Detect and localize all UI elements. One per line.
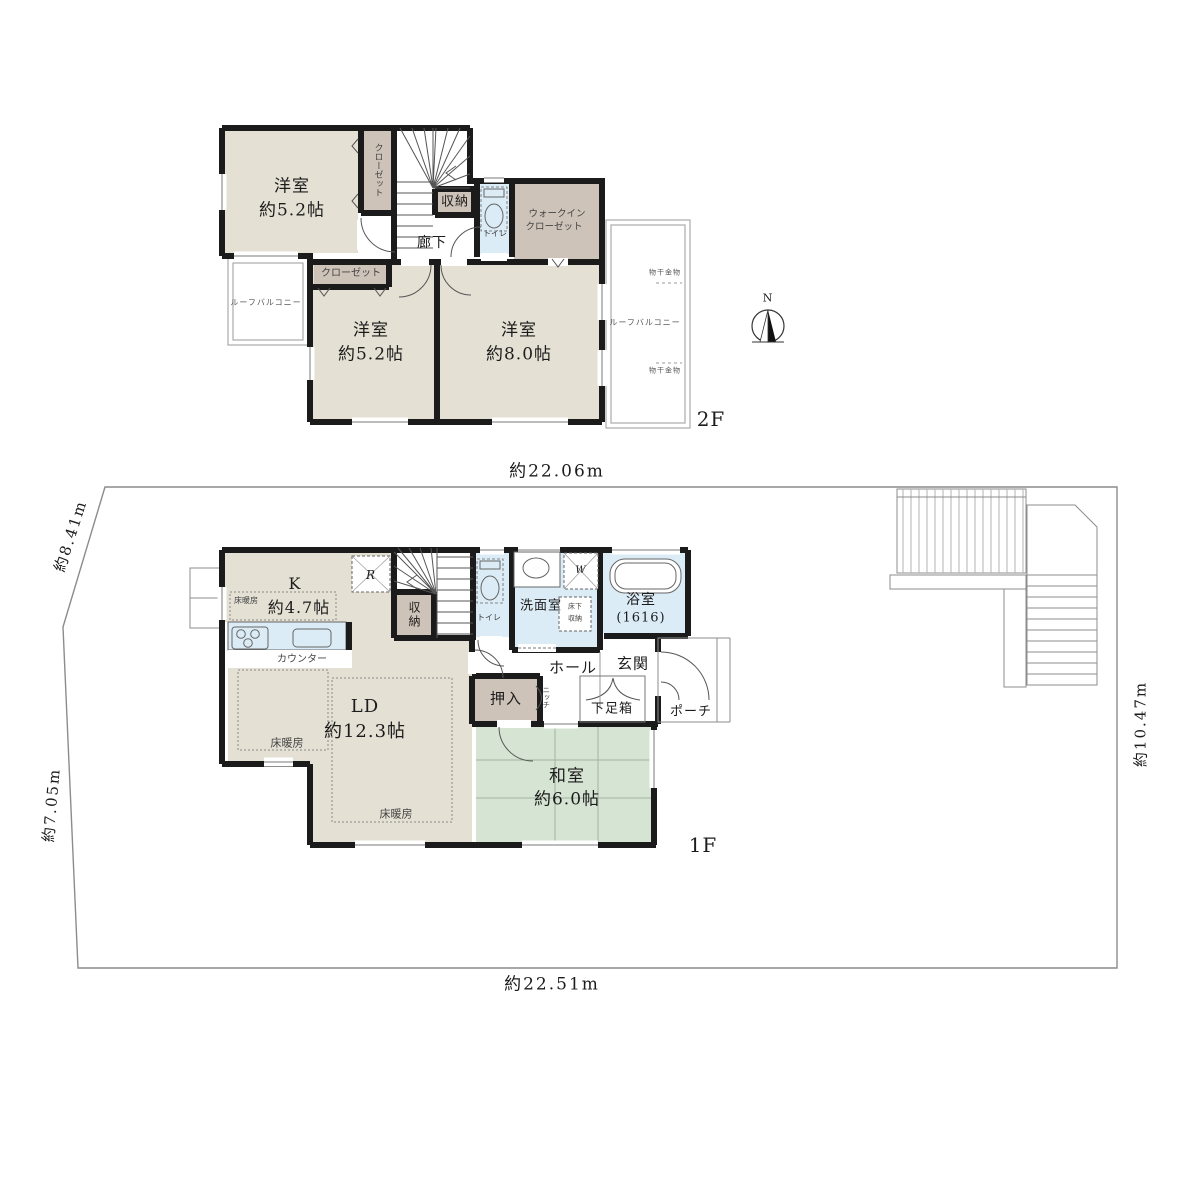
bathroom-size: (1616) [616, 612, 665, 625]
washitsu-name: 和室 [549, 769, 585, 786]
toilet-1f-label: トイレ [477, 614, 501, 622]
room-2f-east-bedroom [439, 265, 600, 420]
floor2-label: 2F [697, 409, 726, 429]
refrigerator-label: R [366, 569, 376, 581]
oshiire-label: 押入 [490, 692, 522, 707]
niche-label: ニッチ [542, 686, 550, 709]
storage-1f-label: 収納 [408, 601, 420, 629]
compass-north-label: N [763, 293, 774, 304]
room-2f-west-size: 約5.2帖 [259, 203, 325, 220]
room-2f-west-name: 洋室 [274, 179, 310, 196]
porch-label: ポーチ [670, 706, 712, 719]
staircase-2f [397, 128, 470, 248]
washroom-sink [514, 552, 560, 587]
room-2f-south-name: 洋室 [353, 323, 389, 340]
counter-label: カウンター [277, 655, 327, 665]
floor-heating-kitchen-label: 床暖房 [234, 597, 258, 605]
room-2f-walkin-closet [514, 181, 601, 259]
shoe-box-label: 下足箱 [591, 703, 633, 716]
hall-label: ホール [549, 661, 597, 676]
floor1-label: 1F [689, 835, 718, 855]
kitchen-counter [228, 622, 346, 650]
washitsu-size: 約6.0帖 [534, 792, 600, 809]
drying-fixture-bottom-label: 物干金物 [649, 368, 681, 375]
ld-name: LD [351, 698, 379, 716]
toilet-2f-label: トイレ [483, 230, 507, 238]
storage-2f-label: 収納 [441, 196, 469, 209]
wic-label-line2: クローゼット [525, 222, 582, 232]
site-dim-right: 約10.47m [1134, 681, 1149, 767]
underfloor-storage-line1: 床下 [568, 604, 582, 611]
room-2f-east-name: 洋室 [501, 323, 537, 340]
balcony-east-label: ルーフバルコニー [609, 319, 680, 327]
floor-heating-ld-west-label: 床暖房 [271, 738, 304, 749]
closet-south-label: クローゼット [321, 269, 381, 279]
compass [752, 310, 784, 342]
bathtub [610, 559, 681, 593]
site-dim-top: 約22.06m [509, 464, 605, 481]
approach-stairs [890, 489, 1097, 687]
kitchen-pass [352, 622, 394, 668]
room-1f-toilet [476, 553, 510, 637]
floorplan-page: 洋室 約5.2帖 クローゼット 収納 廊下 トイレ ウォークイン クローゼット … [0, 0, 1200, 1200]
kitchen-name: K [289, 576, 302, 592]
closet-west-label: クローゼット [373, 143, 382, 197]
drying-fixture-top-label: 物干金物 [649, 270, 681, 277]
site-dim-bottom: 約22.51m [504, 977, 600, 994]
bathroom-name: 浴室 [626, 593, 656, 607]
room-2f-south-size: 約5.2帖 [338, 347, 404, 364]
hallway-label: 廊下 [417, 236, 447, 250]
entrance-label: 玄関 [617, 657, 649, 672]
room-2f-east-size: 約8.0帖 [486, 347, 552, 364]
washer-label: W [575, 566, 586, 576]
underfloor-storage-line2: 収納 [568, 616, 582, 623]
floor-heating-ld-east-label: 床暖房 [380, 809, 413, 820]
kitchen-size: 約4.7帖 [268, 600, 330, 616]
wic-label-line1: ウォークイン [528, 209, 585, 219]
ld-size: 約12.3帖 [324, 723, 406, 741]
compass-needle [768, 310, 776, 342]
washroom-label: 洗面室 [520, 600, 562, 613]
floorplan-canvas [0, 0, 1200, 1200]
exterior-equipment-boxes [190, 568, 222, 628]
balcony-west-label: ルーフバルコニー [230, 299, 301, 307]
floor2-plan [222, 128, 690, 428]
